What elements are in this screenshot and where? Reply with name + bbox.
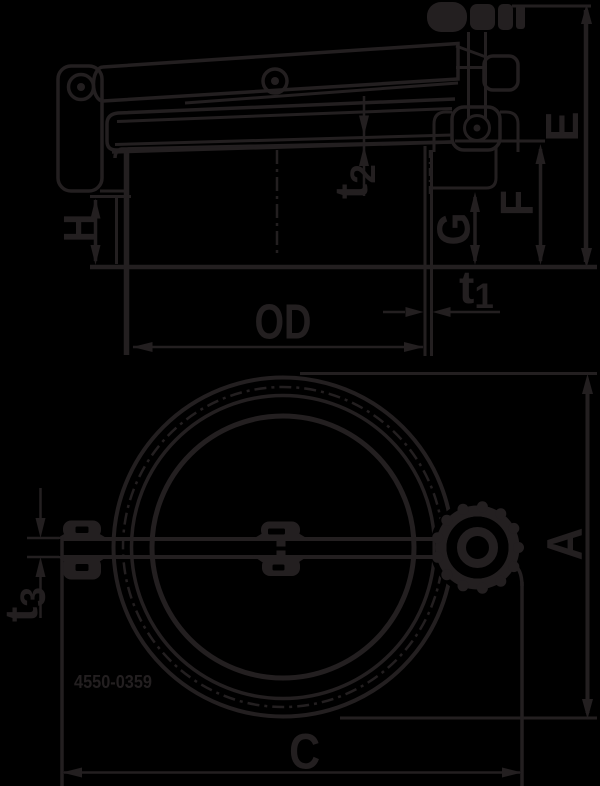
svg-text:F: F: [491, 190, 543, 216]
svg-text:G: G: [428, 213, 480, 246]
svg-text:E: E: [536, 112, 588, 142]
svg-text:OD: OD: [255, 296, 312, 350]
svg-text:C: C: [289, 724, 320, 780]
svg-text:4550-0359: 4550-0359: [74, 672, 152, 692]
svg-text:A: A: [537, 528, 593, 561]
svg-text:H: H: [55, 214, 104, 243]
